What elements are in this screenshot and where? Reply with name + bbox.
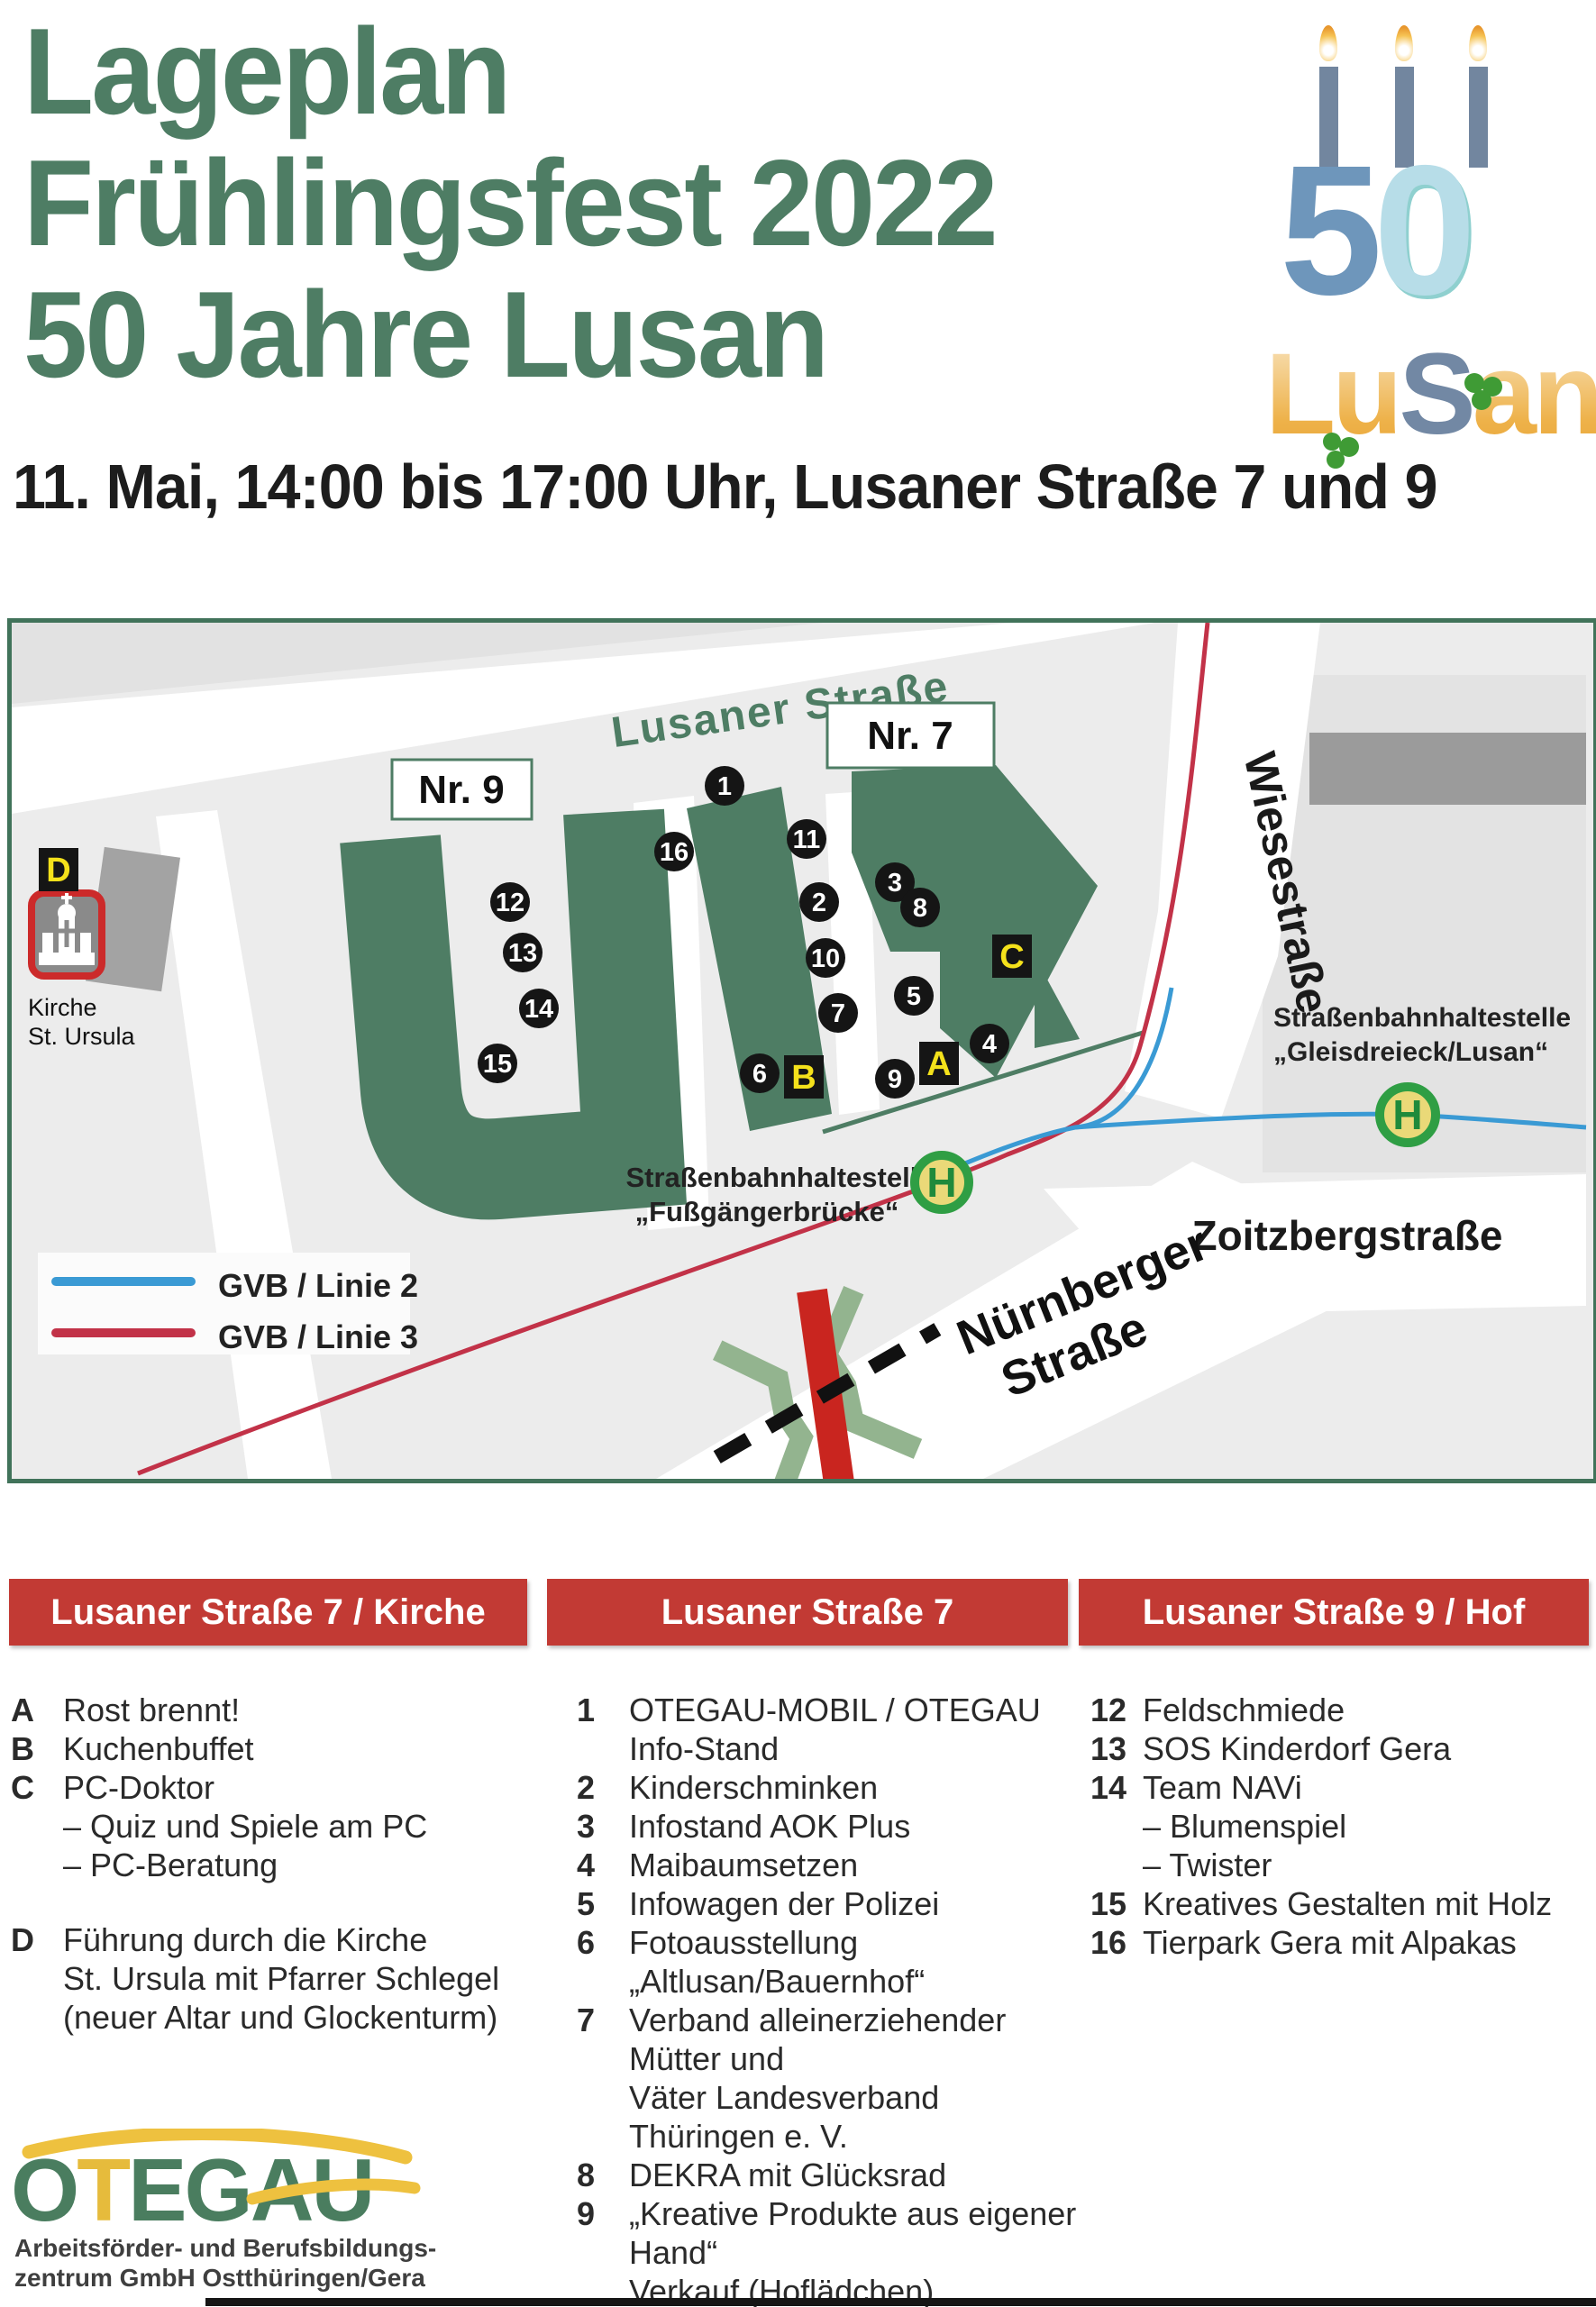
church-label-line2: St. Ursula xyxy=(28,1023,136,1050)
svg-text:3: 3 xyxy=(888,869,902,898)
list-item-label: 3 xyxy=(577,1807,629,1846)
list-item-text: SOS Kinderdorf Gera xyxy=(1143,1729,1451,1768)
title-line-1: Lageplan xyxy=(23,5,996,137)
map-marker-7: 7 xyxy=(818,993,858,1033)
svg-text:5: 5 xyxy=(907,982,921,1011)
list-item-label: 14 xyxy=(1090,1768,1143,1807)
list-item-text: – Twister xyxy=(1143,1846,1272,1884)
candle-flame-icon xyxy=(1395,25,1413,61)
list-item-text: Rost brennt! xyxy=(63,1691,240,1729)
list-item: – Quiz und Spiele am PC xyxy=(11,1807,529,1846)
list-item-text: DEKRA mit Glücksrad xyxy=(629,2156,946,2194)
list-item: DFührung durch die Kirche xyxy=(11,1920,529,1959)
svg-text:B: B xyxy=(791,1059,816,1097)
list-item-label xyxy=(11,1846,63,1884)
section-header-strasse9: Lusaner Straße 9 / Hof xyxy=(1079,1579,1589,1646)
svg-text:14: 14 xyxy=(524,995,553,1024)
list-item-label xyxy=(1090,1807,1143,1846)
list-item: 16Tierpark Gera mit Alpakas xyxy=(1090,1923,1589,1962)
map-marker-13: 13 xyxy=(503,933,543,972)
list-item-label: 2 xyxy=(577,1768,629,1807)
event-date-subtitle: 11. Mai, 14:00 bis 17:00 Uhr, Lusaner St… xyxy=(13,451,1437,523)
svg-text:8: 8 xyxy=(913,894,927,923)
svg-text:6: 6 xyxy=(752,1060,767,1089)
church-icon xyxy=(32,893,102,976)
svg-text:16: 16 xyxy=(660,838,689,867)
stop-label-fussgaenger-1: Straßenbahnhaltestelle xyxy=(625,1162,933,1193)
stop-label-gleisdreieck-1: Straßenbahnhaltestelle xyxy=(1273,1003,1571,1033)
list-item-label xyxy=(11,1807,63,1846)
svg-text:2: 2 xyxy=(812,889,826,917)
list-item-text: – PC-Beratung xyxy=(63,1846,278,1884)
section-list-strasse7: 1OTEGAU-MOBIL / OTEGAU Info-Stand2Kinder… xyxy=(577,1691,1081,2307)
list-item-label xyxy=(1090,1846,1143,1884)
label-box-nr7: Nr. 7 xyxy=(827,703,994,768)
list-item-text: Kinderschminken xyxy=(629,1768,878,1807)
map-marker-14: 14 xyxy=(519,989,559,1028)
list-item-label: 4 xyxy=(577,1846,629,1884)
list-item: St. Ursula mit Pfarrer Schlegel xyxy=(11,1959,529,1998)
section-header-kirche: Lusaner Straße 7 / Kirche xyxy=(9,1579,527,1646)
candle-icon xyxy=(1469,67,1488,168)
svg-text:7: 7 xyxy=(831,999,845,1028)
section-list-strasse9: 12Feldschmiede13SOS Kinderdorf Gera14Tea… xyxy=(1090,1691,1589,1962)
svg-text:H: H xyxy=(1392,1091,1422,1138)
svg-text:11: 11 xyxy=(793,825,821,854)
org-caption-line1: Arbeitsförder- und Berufsbildungs- xyxy=(14,2233,436,2263)
list-item-text: Maibaumsetzen xyxy=(629,1846,858,1884)
svg-text:15: 15 xyxy=(483,1050,512,1079)
list-item-label: B xyxy=(11,1729,63,1768)
stop-label-gleisdreieck-2: „Gleisdreieck/Lusan“ xyxy=(1273,1037,1548,1067)
svg-text:4: 4 xyxy=(982,1030,997,1059)
list-item: (neuer Altar und Glockenturm) xyxy=(11,1998,529,2037)
svg-text:Nr. 9: Nr. 9 xyxy=(418,768,504,812)
list-item: CPC-Doktor xyxy=(11,1768,529,1807)
list-item-text: Infowagen der Polizei xyxy=(629,1884,939,1923)
list-item-text: – Blumenspiel xyxy=(1143,1807,1346,1846)
map-letter-marker-A: A xyxy=(919,1042,959,1085)
list-item: 15Kreatives Gestalten mit Holz xyxy=(1090,1884,1589,1923)
list-item-text: Tierpark Gera mit Alpakas xyxy=(1143,1923,1517,1962)
map-marker-6: 6 xyxy=(740,1053,780,1093)
list-item-text: OTEGAU-MOBIL / OTEGAU Info-Stand xyxy=(629,1691,1081,1768)
map-marker-8: 8 xyxy=(900,888,940,927)
list-item-text: Väter Landesverband Thüringen e. V. xyxy=(629,2078,1081,2156)
list-item: Väter Landesverband Thüringen e. V. xyxy=(577,2078,1081,2156)
svg-text:C: C xyxy=(999,938,1024,976)
list-item-text: Führung durch die Kirche xyxy=(63,1920,427,1959)
list-item: 1OTEGAU-MOBIL / OTEGAU Info-Stand xyxy=(577,1691,1081,1768)
site-map-svg: Kirche St. Ursula Lusaner Straße Wiesest… xyxy=(12,623,1593,1479)
list-item: 7Verband alleinerziehender Mütter und xyxy=(577,2001,1081,2078)
svg-text:9: 9 xyxy=(888,1065,902,1094)
list-item-label: A xyxy=(11,1691,63,1729)
list-item: 3Infostand AOK Plus xyxy=(577,1807,1081,1846)
tram-stop-icon-gleisdreieck: H xyxy=(1380,1087,1436,1143)
svg-text:12: 12 xyxy=(496,889,524,917)
list-item: 4Maibaumsetzen xyxy=(577,1846,1081,1884)
title-line-3: 50 Jahre Lusan xyxy=(23,269,996,400)
list-item-label: 1 xyxy=(577,1691,629,1768)
list-item-label: 8 xyxy=(577,2156,629,2194)
jubilee-50-lusan-logo: 50 LuSan xyxy=(1263,5,1592,492)
list-item: 14Team NAVi xyxy=(1090,1768,1589,1807)
list-item-text: Fotoausstellung „Altlusan/Bauernhof“ xyxy=(629,1923,1081,2001)
section-list-kirche: ARost brennt!BKuchenbuffetCPC-Doktor– Qu… xyxy=(11,1691,529,2037)
stop-label-fussgaenger-2: „Fußgängerbrücke“ xyxy=(635,1196,899,1227)
list-item: – PC-Beratung xyxy=(11,1846,529,1884)
map-marker-4: 4 xyxy=(970,1024,1009,1063)
list-item: BKuchenbuffet xyxy=(11,1729,529,1768)
map-marker-16: 16 xyxy=(654,832,694,871)
svg-text:Nr. 7: Nr. 7 xyxy=(867,714,953,758)
list-item: 5Infowagen der Polizei xyxy=(577,1884,1081,1923)
list-item-label xyxy=(11,1998,63,2037)
list-item-label: 7 xyxy=(577,2001,629,2078)
list-item: 6Fotoausstellung „Altlusan/Bauernhof“ xyxy=(577,1923,1081,2001)
map-marker-12: 12 xyxy=(490,882,530,922)
list-item: 2Kinderschminken xyxy=(577,1768,1081,1807)
svg-text:D: D xyxy=(46,852,70,889)
list-item-text: Infostand AOK Plus xyxy=(629,1807,910,1846)
svg-text:13: 13 xyxy=(508,939,537,968)
list-item-label: C xyxy=(11,1768,63,1807)
building-gray-right xyxy=(1309,733,1586,805)
svg-text:A: A xyxy=(926,1045,951,1083)
list-item-label: 12 xyxy=(1090,1691,1143,1729)
list-gap xyxy=(11,1884,529,1920)
list-item-text: „Kreative Produkte aus eigener Hand“ xyxy=(629,2194,1081,2272)
title-line-2: Frühlingsfest 2022 xyxy=(23,137,996,269)
svg-text:10: 10 xyxy=(811,944,840,973)
list-item: – Twister xyxy=(1090,1846,1589,1884)
list-item: 9„Kreative Produkte aus eigener Hand“ xyxy=(577,2194,1081,2272)
list-item-label xyxy=(577,2078,629,2156)
list-item: – Blumenspiel xyxy=(1090,1807,1589,1846)
map-marker-1: 1 xyxy=(705,766,744,806)
list-item-text: (neuer Altar und Glockenturm) xyxy=(63,1998,497,2037)
list-item: 8DEKRA mit Glücksrad xyxy=(577,2156,1081,2194)
map-marker-11: 11 xyxy=(787,819,826,859)
list-item-text: PC-Doktor xyxy=(63,1768,214,1807)
label-box-nr9: Nr. 9 xyxy=(392,760,532,819)
logo-50-text: 5 xyxy=(1280,127,1373,333)
map-letter-marker-C: C xyxy=(992,935,1032,978)
tram-stop-icon-fussgaengerbruecke: H xyxy=(915,1155,969,1209)
candle-flame-icon xyxy=(1319,25,1337,61)
list-item-text: Kreatives Gestalten mit Holz xyxy=(1143,1884,1552,1923)
list-item-label: 16 xyxy=(1090,1923,1143,1962)
map-marker-2: 2 xyxy=(799,882,839,922)
list-item-text: Kuchenbuffet xyxy=(63,1729,254,1768)
map-legend: GVB / Linie 2 GVB / Linie 3 xyxy=(38,1253,418,1355)
logo-number-50: 50 xyxy=(1280,141,1467,321)
street-label-zoitzberg: Zoitzbergstraße xyxy=(1191,1212,1502,1259)
map-letter-marker-B: B xyxy=(784,1055,824,1099)
section-header-strasse7: Lusaner Straße 7 xyxy=(547,1579,1068,1646)
list-item-label: 6 xyxy=(577,1923,629,2001)
legend-line3-label: GVB / Linie 3 xyxy=(218,1318,418,1355)
map-marker-9: 9 xyxy=(875,1059,915,1099)
bottom-rule xyxy=(205,2298,1596,2306)
logo-0-text: 0 xyxy=(1373,127,1467,333)
list-item-text: – Quiz und Spiele am PC xyxy=(63,1807,427,1846)
page-title: Lageplan Frühlingsfest 2022 50 Jahre Lus… xyxy=(23,5,996,400)
map-marker-5: 5 xyxy=(894,976,934,1016)
legend-line2-label: GVB / Linie 2 xyxy=(218,1267,418,1304)
map-marker-10: 10 xyxy=(806,938,845,978)
legend-line3-swatch xyxy=(51,1328,196,1337)
list-item-text: St. Ursula mit Pfarrer Schlegel xyxy=(63,1959,499,1998)
org-caption: Arbeitsförder- und Berufsbildungs- zentr… xyxy=(14,2233,436,2293)
list-item: 13SOS Kinderdorf Gera xyxy=(1090,1729,1589,1768)
list-item: 12Feldschmiede xyxy=(1090,1691,1589,1729)
list-item-text: Feldschmiede xyxy=(1143,1691,1345,1729)
list-item-text: Verband alleinerziehender Mütter und xyxy=(629,2001,1081,2078)
candle-flame-icon xyxy=(1469,25,1487,61)
org-caption-line2: zentrum GmbH Ostthüringen/Gera xyxy=(14,2263,436,2293)
church-label-line1: Kirche xyxy=(28,994,97,1021)
list-item-text: Team NAVi xyxy=(1143,1768,1302,1807)
list-item-label: 15 xyxy=(1090,1884,1143,1923)
list-item-label: 9 xyxy=(577,2194,629,2272)
svg-text:H: H xyxy=(926,1159,956,1206)
map-letter-marker-D: D xyxy=(39,848,78,891)
svg-text:1: 1 xyxy=(717,772,732,801)
legend-line2-swatch xyxy=(51,1277,196,1286)
map-marker-15: 15 xyxy=(478,1044,517,1083)
list-item-label xyxy=(11,1959,63,1998)
poster-page: Lageplan Frühlingsfest 2022 50 Jahre Lus… xyxy=(0,0,1596,2307)
list-item: ARost brennt! xyxy=(11,1691,529,1729)
list-item-label: 5 xyxy=(577,1884,629,1923)
clover-icon xyxy=(1460,370,1507,414)
list-item-label: D xyxy=(11,1920,63,1959)
otegau-logo: OTEGAU xyxy=(11,2129,425,2237)
list-item-label: 13 xyxy=(1090,1729,1143,1768)
site-map: Kirche St. Ursula Lusaner Straße Wiesest… xyxy=(7,618,1596,1483)
logo-lusan-text: LuSan xyxy=(1265,337,1596,452)
